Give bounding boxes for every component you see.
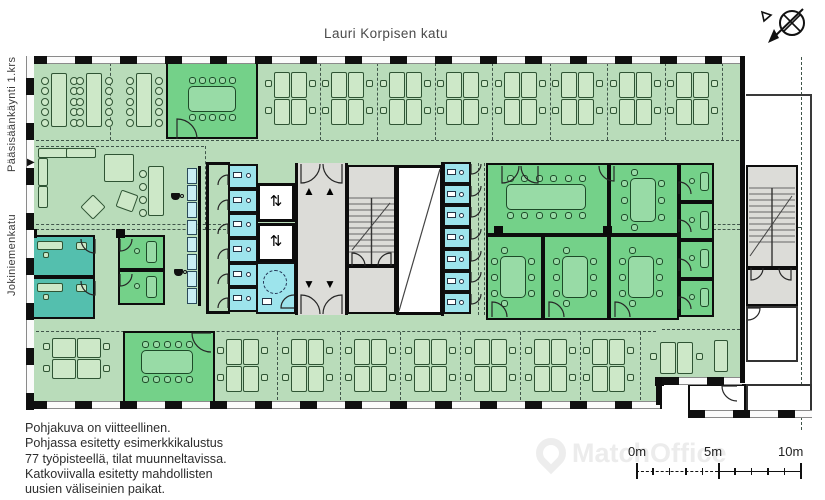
- partition-dashed: [801, 57, 802, 430]
- sofa: [38, 186, 48, 208]
- wc-fixture: [447, 278, 456, 284]
- chair: [553, 258, 560, 265]
- chair: [583, 374, 590, 381]
- scale-tick: [751, 468, 753, 475]
- chair: [565, 212, 572, 219]
- desk: [578, 99, 594, 125]
- room-empty: [746, 384, 812, 412]
- conference-table: [628, 256, 654, 298]
- chair: [528, 274, 535, 281]
- chair: [631, 224, 638, 231]
- scale-tick: [800, 463, 802, 479]
- desk: [660, 342, 676, 374]
- desk: [619, 72, 635, 98]
- chair: [265, 107, 272, 114]
- locker-cell: [187, 288, 197, 304]
- direction-down-icon: ▼: [324, 277, 336, 289]
- chair: [175, 341, 182, 348]
- chair: [569, 374, 576, 381]
- chair: [229, 77, 236, 84]
- chair: [43, 252, 49, 258]
- chair: [658, 180, 665, 187]
- chair: [424, 80, 431, 87]
- window-wall: [662, 377, 742, 385]
- chair: [689, 255, 695, 261]
- chair: [449, 374, 456, 381]
- column-marker: [116, 229, 125, 238]
- chair: [579, 175, 586, 182]
- coffee-cup-icon: [171, 193, 180, 200]
- locker-cell: [187, 254, 197, 270]
- wall: [198, 166, 201, 306]
- chair: [366, 80, 373, 87]
- desk: [504, 99, 520, 125]
- chair: [525, 374, 532, 381]
- chair: [590, 274, 597, 281]
- chair: [563, 300, 570, 307]
- conference-table: [141, 350, 193, 374]
- stool: [139, 196, 147, 204]
- note-line: uusien väliseinien paikat.: [25, 482, 227, 497]
- desk: [308, 339, 324, 365]
- desk: [331, 72, 347, 98]
- desk: [676, 72, 692, 98]
- chair: [583, 347, 590, 354]
- scale-tick: [652, 468, 654, 475]
- chair: [539, 107, 546, 114]
- chair: [621, 180, 628, 187]
- chair: [631, 169, 638, 176]
- conference-table: [188, 86, 236, 112]
- desk: [274, 99, 290, 125]
- window-wall: [688, 410, 812, 418]
- partition-dashed: [36, 140, 739, 141]
- desk: [534, 366, 550, 392]
- chair: [219, 114, 226, 121]
- scale-bar: 0m 5m 10m: [628, 444, 812, 488]
- chair: [189, 77, 196, 84]
- chair: [134, 283, 140, 289]
- chair: [539, 80, 546, 87]
- chair: [380, 107, 387, 114]
- desk: [504, 72, 520, 98]
- chair: [596, 80, 603, 87]
- desk: [52, 338, 76, 358]
- partition-dashed: [400, 332, 401, 400]
- chair: [209, 114, 216, 121]
- desk: [446, 72, 462, 98]
- chair: [610, 107, 617, 114]
- desk: [700, 211, 709, 230]
- desk: [291, 72, 307, 98]
- wc-fixture: [246, 247, 251, 252]
- chair: [689, 217, 695, 223]
- partition-dashed: [580, 332, 581, 400]
- chair: [590, 258, 597, 265]
- desk: [700, 172, 709, 191]
- desk: [463, 99, 479, 125]
- counter: [148, 166, 164, 216]
- chair: [126, 119, 134, 127]
- sofa: [58, 148, 59, 158]
- chair: [596, 107, 603, 114]
- scale-line-dashed: [636, 471, 718, 472]
- direction-down-icon: ▼: [303, 277, 315, 289]
- chair: [481, 80, 488, 87]
- chair: [658, 214, 665, 221]
- scale-tick: [685, 468, 687, 475]
- wc-fixture: [233, 197, 242, 203]
- bench-table: [136, 73, 152, 127]
- partition-dashed: [478, 163, 479, 315]
- stair-vestibule: [347, 266, 396, 314]
- chair: [619, 290, 626, 297]
- chair: [654, 107, 661, 114]
- chair: [579, 212, 586, 219]
- desk: [521, 99, 537, 125]
- chair: [186, 376, 193, 383]
- desk: [331, 99, 347, 125]
- chair: [654, 80, 661, 87]
- chair: [43, 365, 50, 372]
- chair: [309, 80, 316, 87]
- chair: [103, 365, 110, 372]
- chair: [495, 107, 502, 114]
- chair: [689, 178, 695, 184]
- desk: [491, 366, 507, 392]
- chair: [189, 114, 196, 121]
- chair: [164, 341, 171, 348]
- desk: [714, 340, 728, 372]
- chair: [309, 107, 316, 114]
- elevator-arrows-icon: ⇅: [264, 232, 288, 254]
- chair: [155, 119, 163, 127]
- window-wall: [30, 401, 662, 409]
- chair: [217, 374, 224, 381]
- scale-tick: [636, 463, 638, 479]
- chair: [627, 374, 634, 381]
- chair: [536, 175, 543, 182]
- desk: [77, 338, 101, 358]
- window-wall: [26, 56, 34, 410]
- chair: [619, 274, 626, 281]
- direction-up-icon: ▲: [324, 184, 336, 196]
- sofa: [38, 158, 48, 186]
- north-arrow-icon: [750, 2, 820, 50]
- chair: [507, 175, 514, 182]
- chair: [696, 353, 703, 360]
- stairwell: [347, 165, 396, 266]
- chair: [153, 341, 160, 348]
- wc-fixture: [233, 246, 242, 252]
- desk: [52, 359, 76, 379]
- desk: [414, 339, 430, 365]
- chair: [282, 374, 289, 381]
- desk: [291, 99, 307, 125]
- chair: [552, 80, 559, 87]
- direction-up-icon: ▲: [303, 184, 315, 196]
- scale-tick: [734, 468, 736, 475]
- wc-fixture: [447, 256, 456, 262]
- chair: [569, 347, 576, 354]
- desk: [371, 366, 387, 392]
- column-marker: [494, 226, 503, 235]
- stool: [139, 183, 147, 191]
- wc-fixture: [447, 299, 456, 305]
- desk: [348, 99, 364, 125]
- scale-tick: [767, 468, 769, 475]
- chair: [437, 107, 444, 114]
- chair: [550, 175, 557, 182]
- coffee-cup-icon: [174, 269, 183, 276]
- locker-cell: [187, 168, 197, 184]
- desk: [578, 72, 594, 98]
- chair: [134, 248, 140, 254]
- wc-fixture: [447, 234, 456, 240]
- desk: [700, 288, 709, 307]
- partition-dashed: [435, 63, 436, 140]
- chair: [550, 212, 557, 219]
- chair: [41, 77, 49, 85]
- watermark-pin-icon: [530, 432, 572, 474]
- stool: [139, 170, 147, 178]
- chair: [621, 214, 628, 221]
- chair: [528, 290, 535, 297]
- coffee-cup-icon: [180, 194, 184, 198]
- chair: [711, 107, 718, 114]
- chair: [563, 247, 570, 254]
- chair: [219, 77, 226, 84]
- column-marker: [603, 226, 612, 235]
- chair: [76, 77, 84, 85]
- chair: [217, 347, 224, 354]
- scale-line-solid: [718, 471, 800, 472]
- wc-fixture: [233, 295, 242, 301]
- wc-fixture: [246, 272, 251, 277]
- locker-cell: [187, 271, 197, 287]
- locker-cell: [187, 185, 197, 201]
- chair: [126, 98, 134, 106]
- chair: [610, 80, 617, 87]
- note-line: Katkoviivalla esitetty mahdollisten: [25, 467, 227, 482]
- wc-fixture: [233, 221, 242, 227]
- chair: [525, 347, 532, 354]
- chair: [153, 376, 160, 383]
- chair: [627, 347, 634, 354]
- desk: [534, 339, 550, 365]
- desk: [474, 339, 490, 365]
- stool: [139, 209, 147, 217]
- chair: [621, 197, 628, 204]
- chair: [650, 353, 657, 360]
- wc-fixture: [447, 169, 456, 175]
- partition-dashed: [377, 63, 378, 140]
- shaft: [396, 165, 443, 315]
- chair: [667, 107, 674, 114]
- desk: [521, 72, 537, 98]
- partition-dashed: [713, 224, 740, 225]
- chair: [656, 258, 663, 265]
- chair: [186, 341, 193, 348]
- desk: [561, 72, 577, 98]
- desk: [146, 241, 157, 263]
- chair: [405, 374, 412, 381]
- chair: [105, 98, 113, 106]
- chair: [629, 300, 636, 307]
- chair: [380, 80, 387, 87]
- chair: [619, 258, 626, 265]
- chair: [345, 374, 352, 381]
- note-line: 77 työpisteellä, tilat muunneltavissa.: [25, 452, 227, 467]
- desk: [354, 366, 370, 392]
- chair: [656, 290, 663, 297]
- office-room: [118, 235, 165, 270]
- locker-cell: [187, 237, 197, 253]
- locker-cell: [187, 220, 197, 236]
- desk: [619, 99, 635, 125]
- chair: [265, 80, 272, 87]
- chair: [528, 258, 535, 265]
- room-empty: [688, 384, 746, 412]
- chair: [465, 347, 472, 354]
- partition-dashed: [460, 332, 461, 400]
- chair: [326, 374, 333, 381]
- locker-cell: [187, 202, 197, 218]
- wc-fixture: [233, 172, 242, 178]
- entrance-arrow-icon: ▶: [27, 157, 35, 168]
- street-label-top: Lauri Korpisen katu: [30, 26, 742, 41]
- desk: [243, 339, 259, 365]
- partition-dashed: [277, 332, 278, 400]
- chair: [261, 374, 268, 381]
- chair: [449, 347, 456, 354]
- chair: [565, 175, 572, 182]
- elevator-arrows-icon: ⇅: [264, 192, 288, 214]
- scale-label-10m: 10m: [778, 444, 803, 459]
- chair: [667, 80, 674, 87]
- desk: [551, 366, 567, 392]
- desk: [693, 99, 709, 125]
- desk: [700, 249, 709, 268]
- desk: [243, 366, 259, 392]
- chair: [656, 274, 663, 281]
- chair: [552, 107, 559, 114]
- wc-fixture: [246, 173, 251, 178]
- partition-dashed: [607, 63, 608, 140]
- desk: [389, 99, 405, 125]
- wc-fixture: [447, 212, 456, 218]
- side-table: [76, 242, 87, 250]
- partition-dashed: [340, 332, 341, 400]
- window-wall: [30, 56, 741, 64]
- sofa: [66, 148, 96, 158]
- partition-dashed: [662, 329, 740, 330]
- desk: [636, 99, 652, 125]
- wall: [206, 162, 209, 314]
- desk: [406, 72, 422, 98]
- floor-plan: ⇅⇅►►▲▲▼▼ Lauri Korpisen katu Pääsisäänkä…: [0, 0, 825, 500]
- chair: [689, 294, 695, 300]
- scale-tick: [669, 468, 671, 475]
- side-table: [76, 284, 87, 292]
- chair: [553, 290, 560, 297]
- chair: [164, 376, 171, 383]
- desk: [37, 241, 63, 250]
- desk: [354, 339, 370, 365]
- partition-dashed: [520, 332, 521, 400]
- chair: [229, 114, 236, 121]
- desk: [491, 339, 507, 365]
- desk: [37, 283, 63, 292]
- chair: [495, 80, 502, 87]
- partition-dashed: [665, 63, 666, 140]
- scale-label-0m: 0m: [628, 444, 646, 459]
- chair: [282, 347, 289, 354]
- conference-table: [500, 256, 526, 298]
- desk: [592, 339, 608, 365]
- wc-fixture: [459, 279, 464, 284]
- wall: [295, 163, 298, 315]
- desk: [226, 339, 242, 365]
- chair: [155, 77, 163, 85]
- wc-fixture: [459, 257, 464, 262]
- desk: [406, 99, 422, 125]
- desk: [609, 366, 625, 392]
- desk: [146, 276, 157, 298]
- chair: [481, 107, 488, 114]
- chair: [501, 247, 508, 254]
- chair: [491, 274, 498, 281]
- office-room: [118, 270, 165, 305]
- notes-block: Pohjakuva on viitteellinen. Pohjassa esi…: [25, 421, 227, 497]
- bench-table: [51, 73, 67, 127]
- chair: [126, 77, 134, 85]
- desk: [609, 339, 625, 365]
- wc-fixture: [262, 298, 272, 305]
- stairwell: [746, 165, 798, 268]
- scale-tick: [702, 468, 704, 475]
- chair: [465, 374, 472, 381]
- partition-dashed: [640, 332, 641, 400]
- chair: [509, 347, 516, 354]
- chair: [199, 114, 206, 121]
- partition-dashed: [713, 229, 740, 230]
- note-line: Pohjassa esitetty esimerkkikalustus: [25, 436, 227, 451]
- partition-dashed: [550, 63, 551, 140]
- wall: [206, 311, 230, 314]
- desk: [474, 366, 490, 392]
- chair: [389, 374, 396, 381]
- desk: [693, 72, 709, 98]
- wall-thin: [810, 94, 812, 418]
- chair: [491, 258, 498, 265]
- wall: [206, 162, 230, 165]
- turning-circle: [263, 270, 287, 294]
- wall: [656, 378, 662, 405]
- desk: [308, 366, 324, 392]
- chair: [345, 347, 352, 354]
- desk: [77, 359, 101, 379]
- wc-fixture: [447, 191, 456, 197]
- chair: [536, 212, 543, 219]
- desk: [274, 72, 290, 98]
- desk: [226, 366, 242, 392]
- chair: [103, 343, 110, 350]
- wc-fixture: [233, 271, 242, 277]
- street-label-left: Jokiniemenkatu: [6, 186, 18, 296]
- wc-fixture: [246, 198, 251, 203]
- desk: [677, 342, 693, 374]
